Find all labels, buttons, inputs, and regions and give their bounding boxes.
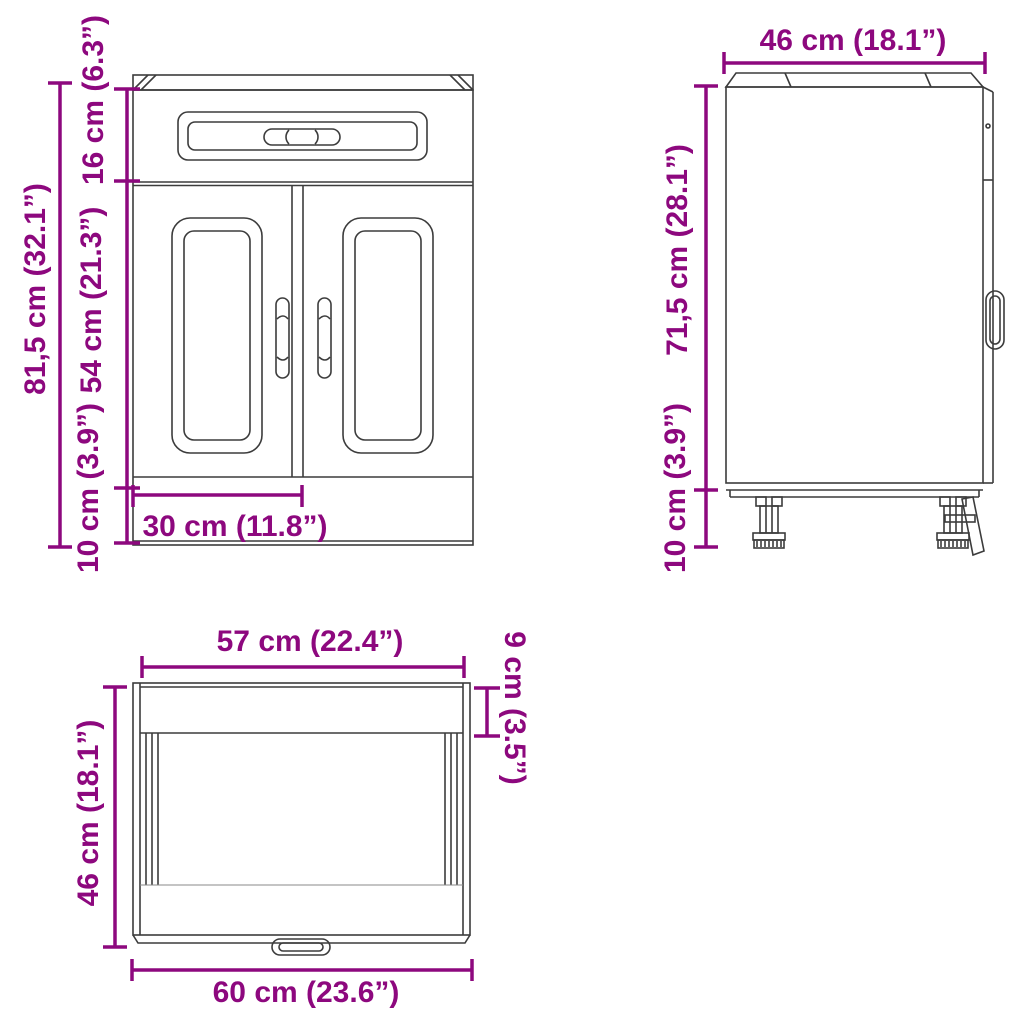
front-plinth-height-label: 10 cm (3.9”) [74, 403, 104, 573]
top-total-width-label: 60 cm (23.6”) [213, 978, 400, 1008]
top-inner-width-label: 57 cm (22.4”) [217, 627, 404, 657]
top-view-drawing [133, 683, 470, 955]
front-door-width-label: 30 cm (11.8”) [142, 512, 327, 542]
top-countertop-depth-label: 9 cm (3.5”) [499, 631, 529, 784]
side-leg-height-label: 10 cm (3.9”) [661, 403, 691, 573]
front-foot [753, 497, 785, 548]
top-depth-label: 46 cm (18.1”) [74, 720, 104, 907]
side-view-drawing [726, 73, 1004, 555]
top-view-dimension-lines [103, 656, 500, 981]
side-body-height-label: 71,5 cm (28.1”) [663, 144, 693, 356]
side-view-dimension-lines [694, 52, 985, 547]
side-depth-label: 46 cm (18.1”) [760, 26, 947, 56]
front-total-height-label: 81,5 cm (32.1”) [21, 183, 51, 395]
front-door-height-label: 54 cm (21.3”) [77, 207, 107, 394]
rear-foot [937, 497, 984, 555]
front-drawer-height-label: 16 cm (6.3”) [79, 15, 109, 185]
front-view-drawing [133, 75, 473, 545]
dimension-diagram: 81,5 cm (32.1”) 16 cm (6.3”) 54 cm (21.3… [0, 0, 1024, 1024]
